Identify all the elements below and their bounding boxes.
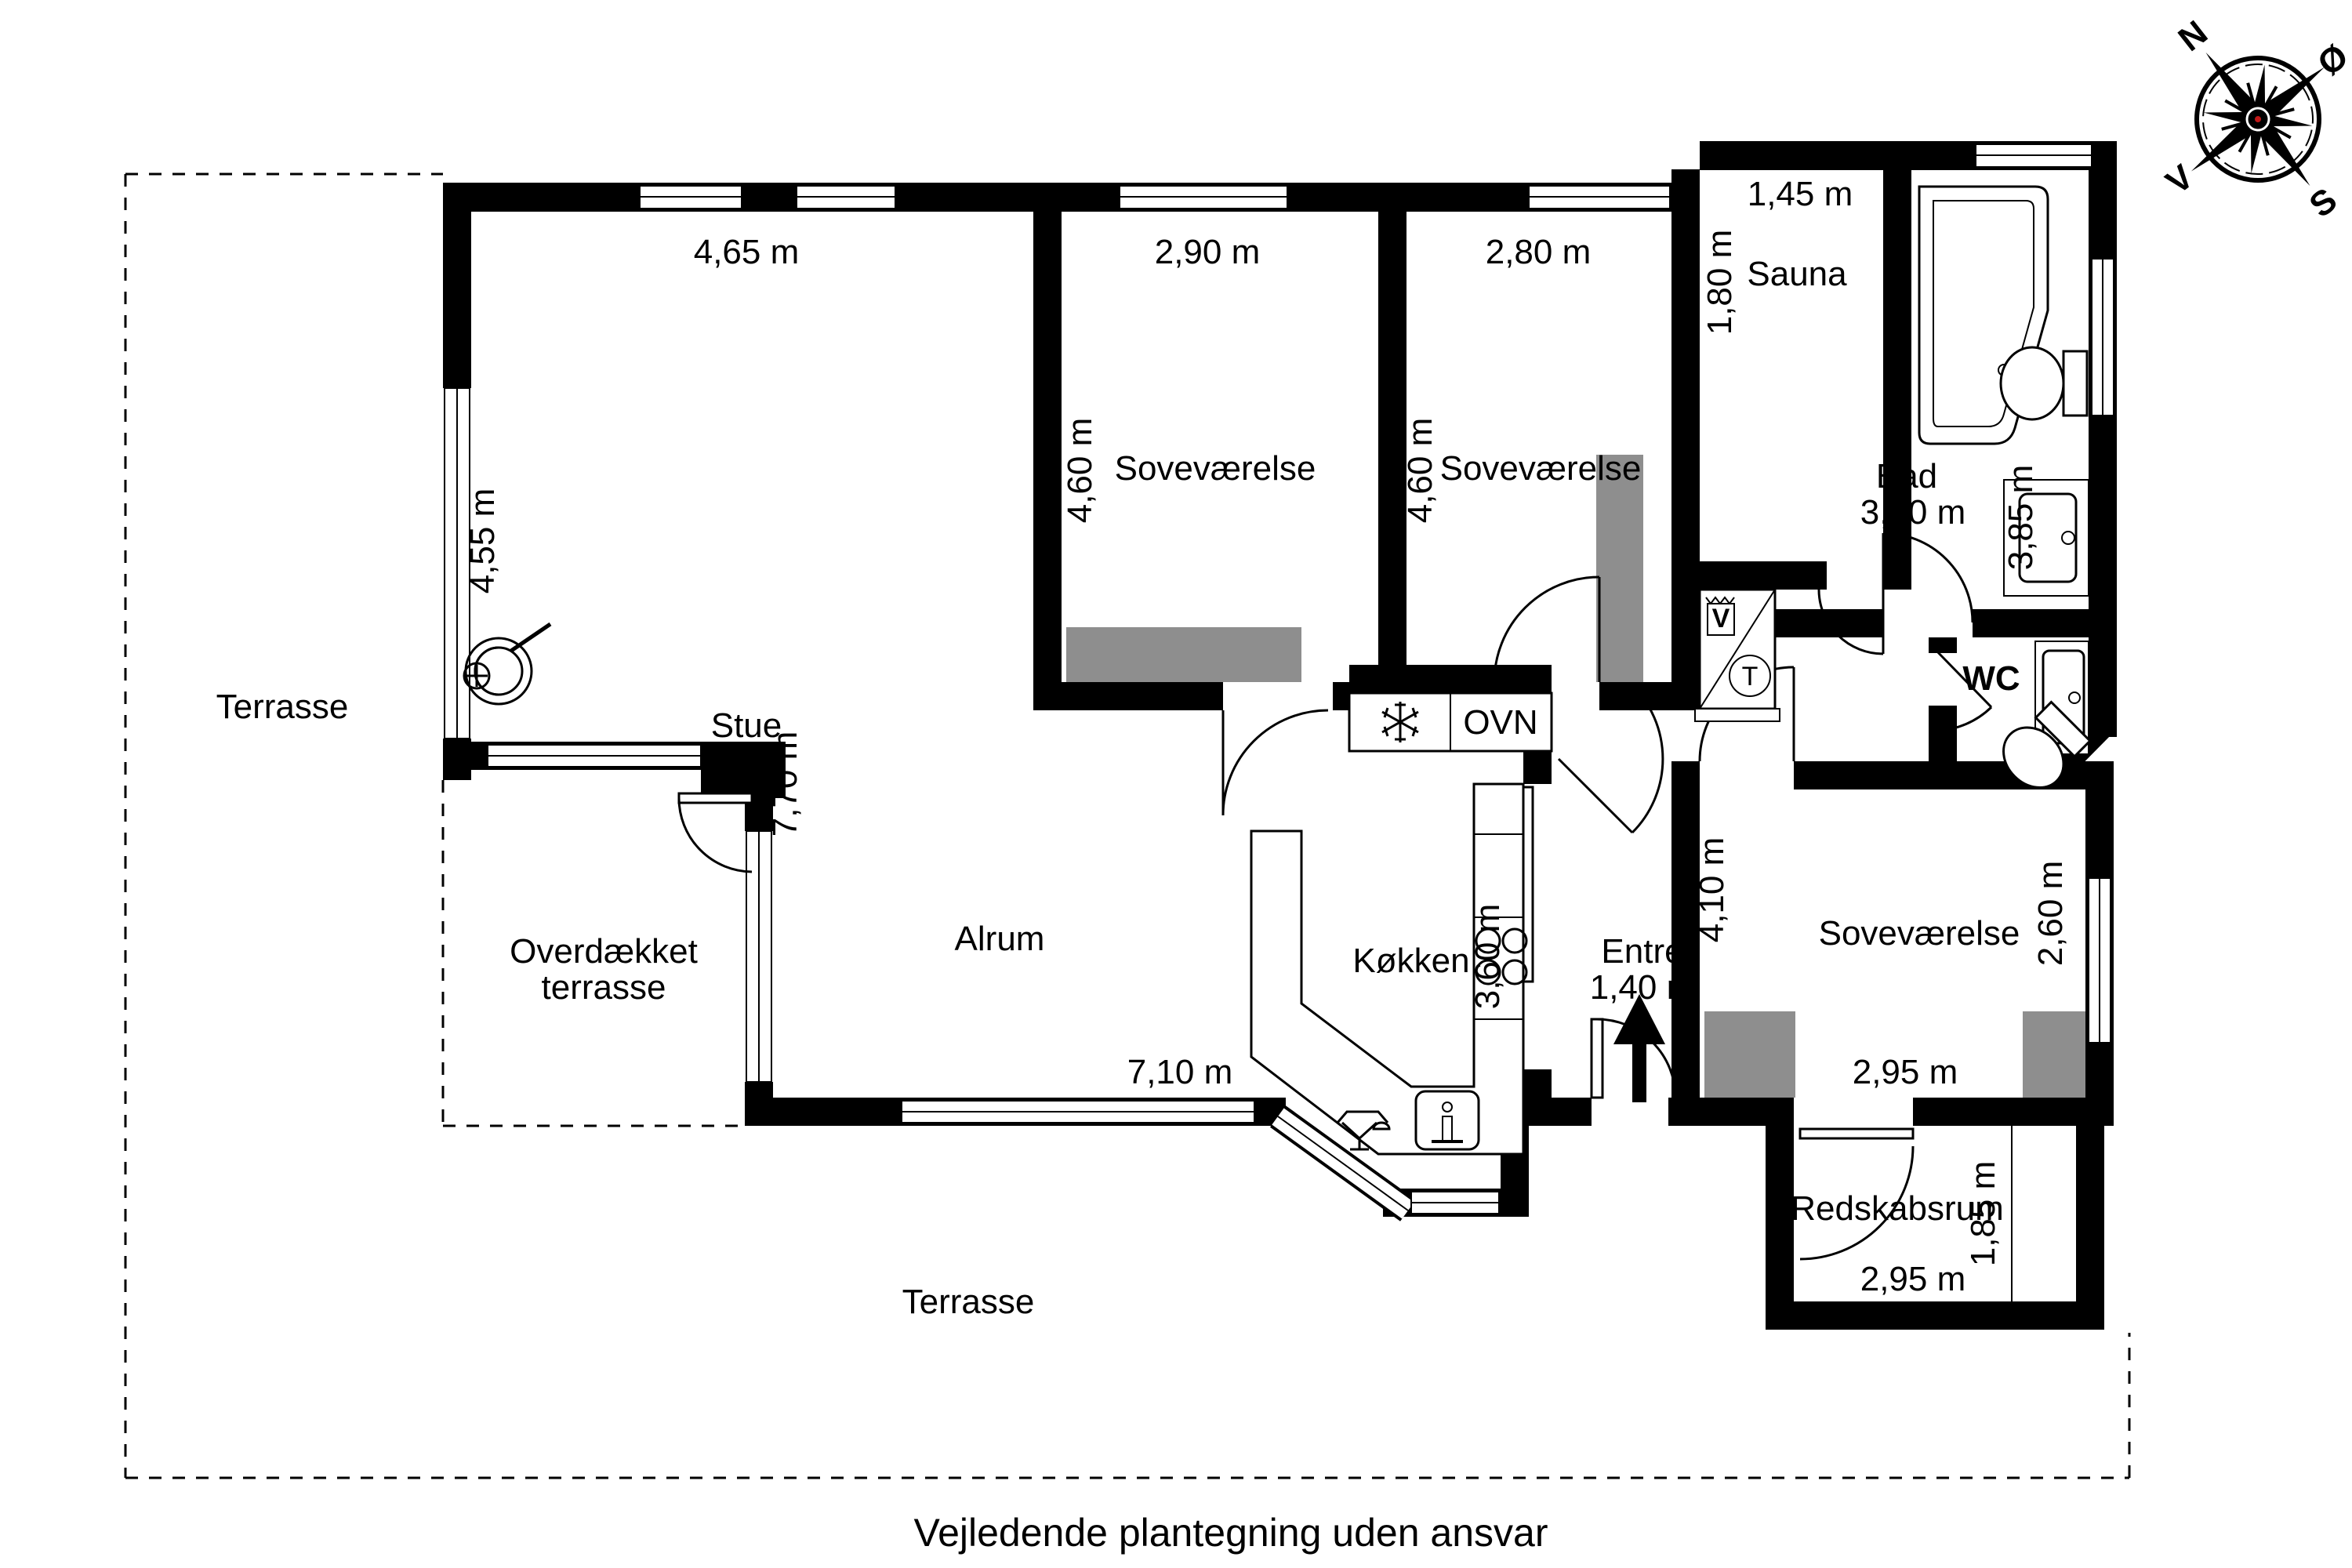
room-label-wc: WC	[1962, 659, 2020, 698]
wardrobe-sovevaerelse3-right	[2023, 1011, 2085, 1098]
window-alrum-south	[902, 1101, 1254, 1123]
kitchen-sink-icon	[1416, 1091, 1479, 1149]
window-sovevaerelse1	[1120, 186, 1287, 209]
dim-sovevaerelse1-depth: 4,60 m	[1061, 418, 1099, 524]
dim-redskabsrum-depth: 1,85 m	[1964, 1161, 2002, 1267]
terrace-dashed-outline	[125, 174, 2129, 1478]
wardrobe-sovevaerelse2	[1596, 455, 1643, 682]
area-label-overdaekket-2: terrasse	[542, 968, 666, 1007]
plan-caption: Vejledende plantegning uden ansvar	[913, 1511, 1548, 1555]
dim-sovevaerelse1-width: 2,90 m	[1155, 233, 1261, 271]
dim-bad-width: 3,20 m	[1860, 493, 1966, 532]
window-sovevaerelse3-east	[2089, 878, 2111, 1043]
wardrobe-sovevaerelse1	[1066, 627, 1301, 682]
room-label-sauna: Sauna	[1747, 255, 1847, 293]
toilet-bad-icon	[2001, 347, 2087, 419]
window-bay-south	[1411, 1192, 1499, 1214]
area-label-overdaekket-1: Overdækket	[510, 932, 698, 971]
window-alrum-west	[746, 831, 771, 1082]
room-label-bad: Bad	[1876, 457, 1937, 495]
room-label-sovevaerelse1: Soveværelse	[1115, 449, 1316, 488]
appliance-label-washer: V	[1712, 604, 1730, 633]
dim-entre-width: 1,40 m	[1590, 968, 1696, 1007]
compass-north-label: N	[2172, 13, 2215, 59]
wardrobe-sovevaerelse3-left	[1704, 1011, 1795, 1098]
room-label-entre: Entré	[1601, 932, 1683, 971]
dim-sauna-depth: 1,80 m	[1700, 230, 1739, 336]
door-sovevaerelse1	[1223, 710, 1328, 815]
window-stue-north-1	[640, 186, 742, 209]
dim-bad-depth: 3,85 m	[2002, 465, 2040, 571]
floorplan-canvas: N Ø S V Stue 4,65 m 4,55 m Soveværelse 2…	[0, 0, 2352, 1568]
room-label-alrum: Alrum	[955, 920, 1045, 958]
dim-sovevaerelse3-window: 2,60 m	[2031, 861, 2070, 967]
compass-south-label: S	[2303, 180, 2344, 225]
labels: Stue 4,65 m 4,55 m Soveværelse 2,90 m 4,…	[216, 175, 2070, 1555]
dim-redskabsrum-width: 2,95 m	[1860, 1260, 1966, 1298]
compass-rose: N Ø S V	[2094, 0, 2352, 286]
dim-stue-side: 4,55 m	[463, 488, 502, 594]
area-label-terrasse-left: Terrasse	[216, 688, 349, 726]
window-bad-east	[2092, 259, 2114, 416]
dim-sovevaerelse3-width: 2,95 m	[1853, 1053, 1958, 1091]
dim-sovevaerelse2-depth: 4,60 m	[1401, 418, 1439, 524]
appliance-label-ovn: OVN	[1463, 703, 1537, 742]
walls	[443, 141, 2117, 1330]
room-label-koekken: Køkken	[1352, 942, 1469, 980]
compass-west-label: V	[2159, 157, 2201, 201]
window-stue-south	[488, 745, 701, 767]
compass-east-label: Ø	[2310, 37, 2352, 84]
room-label-sovevaerelse2: Soveværelse	[1440, 449, 1642, 488]
appliance-label-dryer: T	[1742, 662, 1759, 691]
area-label-terrasse-bottom: Terrasse	[902, 1283, 1035, 1321]
window-sovevaerelse2	[1529, 186, 1670, 209]
dim-sauna-width: 1,45 m	[1748, 175, 1853, 213]
stove-fireplace-icon	[464, 624, 550, 704]
dim-alrum-west: 7,70 m	[766, 731, 804, 837]
door-stue-terrace	[679, 793, 752, 872]
dim-alrum-south: 7,10 m	[1127, 1053, 1233, 1091]
room-label-sovevaerelse3: Soveværelse	[1819, 914, 2020, 953]
window-bad-north	[1976, 144, 2092, 167]
window-stue-north-2	[797, 186, 895, 209]
dim-entre-corridor: 4,10 m	[1693, 837, 1731, 943]
dim-stue-width: 4,65 m	[694, 233, 800, 271]
washer-dryer-unit	[1695, 590, 1780, 721]
dim-sovevaerelse2-width: 2,80 m	[1486, 233, 1592, 271]
dim-koekken-depth: 3,60 m	[1468, 904, 1507, 1010]
